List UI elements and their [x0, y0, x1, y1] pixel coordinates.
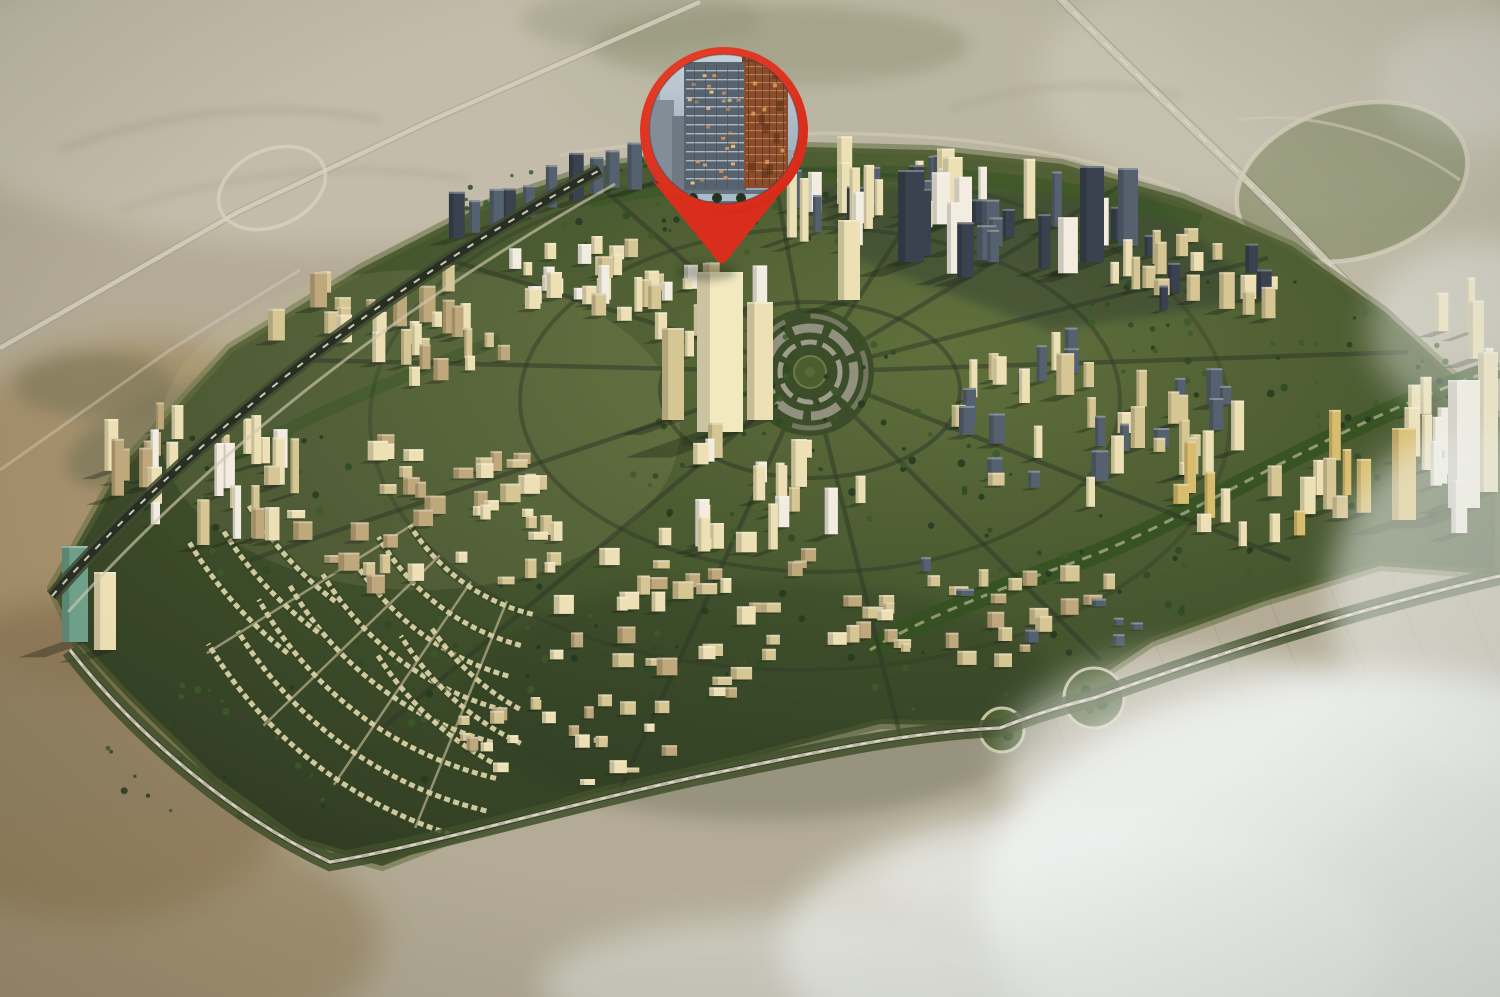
photo-window — [753, 81, 757, 85]
photo-bronze-panel — [759, 115, 765, 125]
photo-window — [719, 170, 723, 173]
photo-window — [696, 160, 700, 163]
photo-window — [724, 176, 728, 179]
photo-window — [706, 126, 710, 129]
aerial-city-scene — [0, 0, 1500, 997]
photo-bronze-panel — [777, 101, 783, 111]
photo-bronze-line — [746, 98, 786, 99]
photo-window — [737, 99, 741, 102]
photo-window — [728, 132, 732, 135]
photo-window — [703, 74, 707, 77]
photo-window — [731, 162, 735, 165]
photo-mullion — [705, 64, 706, 188]
photo-window — [722, 100, 726, 103]
photo-tower-glass — [684, 62, 746, 190]
photo-window — [692, 83, 696, 86]
photo-window — [707, 85, 711, 88]
photo-palm-crown — [712, 193, 722, 203]
photo-bronze-line — [746, 90, 786, 91]
photo-window — [762, 107, 766, 111]
photo-window — [721, 137, 725, 140]
photo-mullion — [694, 64, 695, 188]
photo-window — [731, 142, 735, 145]
photo-window — [781, 149, 785, 153]
photo-bronze-mullion — [755, 56, 756, 186]
photo-window — [731, 145, 735, 148]
photo-window — [726, 108, 730, 111]
photo-window — [710, 91, 714, 94]
photo-window — [728, 99, 732, 102]
photo-bronze-panel — [763, 168, 769, 178]
pin-shadow — [676, 263, 736, 281]
photo-bronze-mullion — [748, 56, 749, 186]
photo-bronze-line — [746, 154, 786, 155]
photo-window — [706, 107, 710, 110]
photo-window — [773, 83, 777, 87]
photo-bronze-line — [746, 146, 786, 147]
photo-mullion — [738, 64, 739, 188]
photo-mullion — [716, 64, 717, 188]
photo-window — [688, 98, 692, 101]
photo-bronze-panel — [774, 133, 780, 143]
photo-window — [722, 92, 726, 95]
photo-bronze-line — [746, 138, 786, 139]
photo-bronze-panel — [763, 124, 769, 134]
photo-window — [751, 112, 755, 116]
photo-window — [712, 74, 716, 77]
photo-window — [725, 147, 729, 150]
photo-mullion — [727, 64, 728, 188]
screenshot-root — [0, 0, 1500, 997]
photo-window — [703, 164, 707, 167]
photo-window — [691, 182, 695, 185]
photo-window — [765, 160, 769, 164]
photo-bronze-panel — [749, 162, 755, 172]
photo-window — [695, 101, 699, 104]
photo-window — [700, 179, 704, 182]
photo-bronze-line — [746, 82, 786, 83]
photo-bronze-line — [746, 122, 786, 123]
